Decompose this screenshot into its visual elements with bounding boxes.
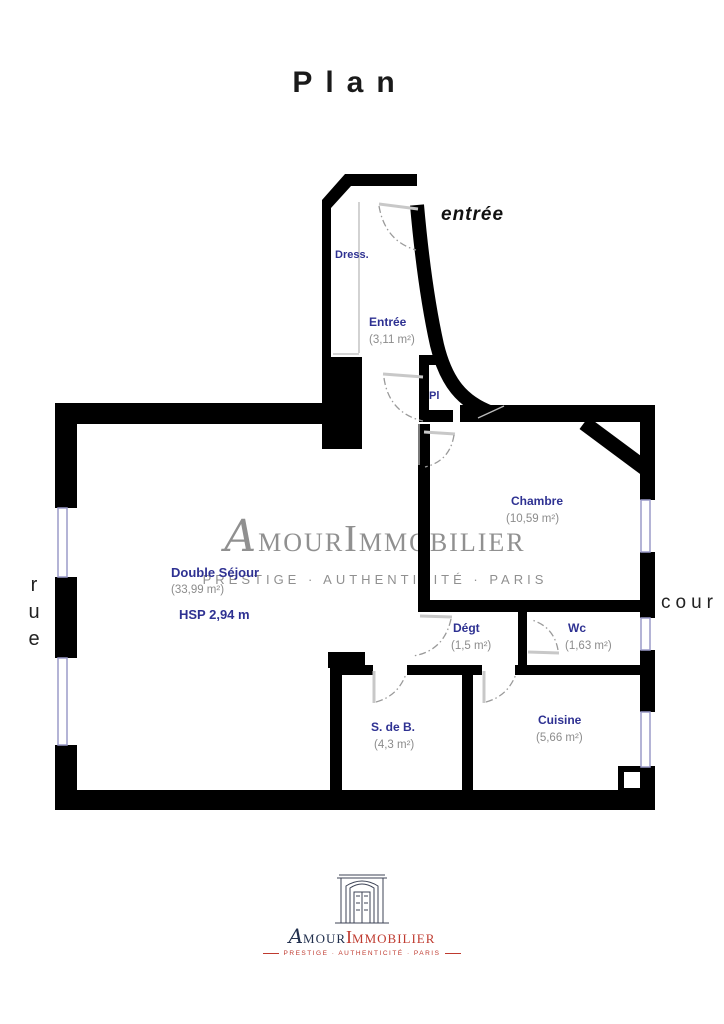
room-degagement-area: (1,5 m²) — [451, 640, 491, 652]
footer-tagline-row: PRESTIGE · AUTHENTICITÉ · PARIS — [263, 950, 462, 957]
room-salle-de-bain-area: (4,3 m²) — [374, 739, 414, 751]
room-entree-label: Entrée — [369, 315, 406, 329]
room-cuisine-label: Cuisine — [538, 713, 581, 727]
footer-rule-left — [263, 953, 279, 954]
room-entree-area: (3,11 m²) — [369, 334, 415, 346]
room-sejour-area: (33,99 m²) — [171, 584, 224, 596]
footer-rule-right — [445, 953, 461, 954]
room-salle-de-bain-label: S. de B. — [371, 720, 415, 734]
floor-plan-page: Plan AMOURIMMOBILIER PRESTIGE · AUTHENTI… — [0, 0, 724, 1024]
street-label: rue — [22, 574, 45, 655]
room-sejour-ceiling-height: HSP 2,94 m — [179, 607, 250, 622]
footer-immobilier: MMOBILIER — [352, 931, 435, 946]
footer-initial-a: A — [289, 924, 303, 948]
entrance-outside-label: entrée — [441, 204, 504, 226]
building-portal-icon — [333, 872, 391, 924]
corner-notch — [624, 772, 640, 788]
room-placard-label: Pl — [429, 390, 439, 402]
room-chambre-label: Chambre — [511, 494, 563, 508]
room-cuisine-area: (5,66 m²) — [536, 732, 583, 744]
room-wc-area: (1,63 m²) — [565, 640, 612, 652]
footer-tagline: PRESTIGE · AUTHENTICITÉ · PARIS — [284, 950, 441, 957]
room-wc-label: Wc — [568, 621, 586, 635]
room-sejour-label: Double Séjour — [171, 565, 259, 580]
floor-plan-drawing — [0, 0, 724, 1024]
footer-amour: MOUR — [303, 931, 346, 946]
courtyard-label: cour — [661, 592, 718, 614]
footer-brand: AMOURIMMOBILIER — [289, 926, 436, 949]
room-chambre-area: (10,59 m²) — [506, 513, 559, 525]
agency-logo: AMOURIMMOBILIER PRESTIGE · AUTHENTICITÉ … — [0, 872, 724, 957]
room-degagement-label: Dégt — [453, 621, 480, 635]
room-dress-label: Dress. — [335, 249, 369, 261]
